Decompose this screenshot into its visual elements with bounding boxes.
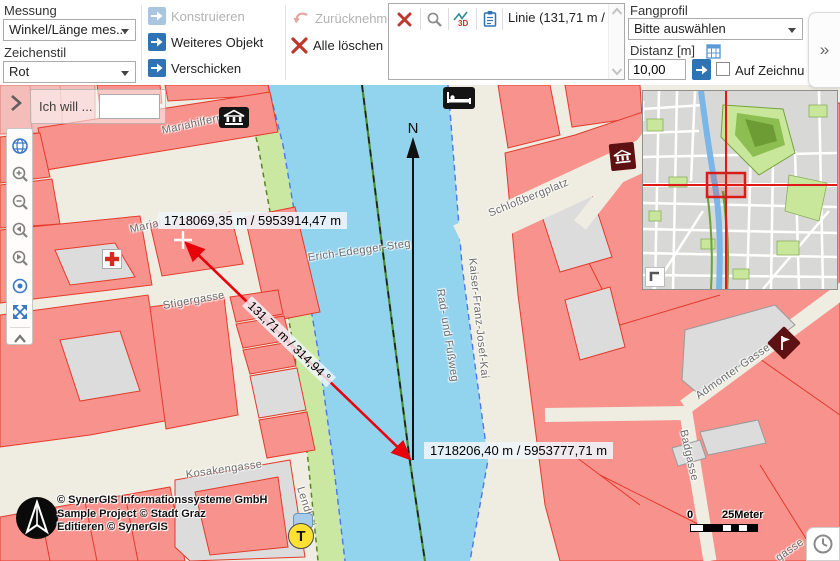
map-copyright: © SynerGIS Informationssysteme GmbH Samp… (57, 494, 267, 535)
delete-icon (291, 37, 308, 54)
toolbar-separator (285, 5, 286, 80)
overview-map-graphic (643, 91, 837, 289)
expand-panel-icon[interactable] (8, 93, 24, 113)
measurement-tool-select[interactable]: Winkel/Länge mes... (3, 19, 136, 41)
blue-arrow-icon (696, 64, 708, 76)
scalebar-start-label: 0 (687, 509, 693, 521)
measure-end-coords: 1718206,40 m / 5953777,71 m (424, 442, 613, 459)
panel-separator (420, 8, 421, 30)
snap-on-drawing-label: Auf Zeichnung fang (735, 63, 805, 78)
apply-distance-button[interactable] (692, 59, 711, 80)
profile-3d-button[interactable]: 3D (450, 7, 474, 31)
double-chevron-icon: » (820, 40, 829, 60)
scroll-up-icon[interactable] (611, 7, 623, 16)
hotel-bed-icon[interactable] (443, 87, 475, 109)
globe-icon[interactable] (10, 136, 30, 156)
toolbar: Messung Winkel/Länge mes... Zeichenstil … (0, 0, 840, 85)
delete-all-label: Alle löschen (313, 38, 383, 53)
magnifier-icon (426, 11, 443, 28)
zoom-in-icon[interactable] (10, 164, 30, 184)
full-extent-icon[interactable] (10, 302, 30, 322)
panel-separator (448, 8, 449, 30)
zoom-next-icon[interactable] (10, 248, 30, 268)
panel-separator (476, 8, 477, 30)
another-object-label: Weiteres Objekt (171, 35, 263, 50)
measurement-group-label: Messung (4, 3, 57, 18)
blue-arrow-icon (148, 7, 166, 25)
distance-label: Distanz [m] (630, 43, 695, 58)
copyright-line: Sample Project © Stadt Graz (57, 508, 267, 522)
delete-all-button[interactable]: Alle löschen (291, 37, 383, 54)
chevron-down-icon (121, 29, 129, 34)
locate-icon[interactable] (10, 276, 30, 296)
blue-arrow-icon (148, 59, 166, 77)
report-icon (482, 10, 498, 28)
snap-group-label: Fangprofil (630, 3, 688, 18)
overview-extent-box[interactable] (707, 173, 745, 197)
construct-label: Konstruieren (171, 9, 245, 24)
another-object-button[interactable]: Weiteres Objekt (148, 33, 263, 51)
landmark-pin-icon[interactable] (609, 142, 637, 171)
distance-input[interactable] (628, 59, 686, 80)
report-button[interactable] (478, 7, 502, 31)
north-compass-logo (15, 496, 59, 540)
style-group-label: Zeichenstil (4, 45, 66, 60)
scalebar (690, 524, 758, 532)
undo-icon (292, 9, 310, 27)
draw-style-select[interactable]: Rot (3, 61, 136, 83)
chevron-down-icon (121, 71, 129, 76)
send-label: Verschicken (171, 61, 241, 76)
delete-measurement-button[interactable] (392, 7, 416, 31)
search-input[interactable] (99, 94, 160, 119)
map-tools (6, 128, 33, 345)
pharmacy-cross-icon[interactable] (102, 249, 122, 269)
grid-icon[interactable] (706, 44, 721, 59)
tool-divider (10, 327, 30, 328)
snap-profile-select[interactable]: Bitte auswählen (628, 18, 803, 40)
undo-button[interactable]: Zurücknehmen (292, 9, 402, 27)
copyright-line: © SynerGIS Informationssysteme GmbH (57, 494, 267, 508)
flag-icon[interactable] (767, 326, 801, 360)
clock-icon (812, 533, 834, 555)
zoom-to-measurement-button[interactable] (422, 7, 446, 31)
snap-on-drawing-checkbox[interactable] (716, 62, 730, 76)
history-clock-button[interactable] (806, 527, 840, 561)
measure-start-coords: 1718069,35 m / 5953914,47 m (158, 212, 347, 229)
copyright-line: Editieren © SynerGIS (57, 521, 267, 535)
measurement-tool-value: Winkel/Länge mes... (9, 22, 127, 37)
search-label: Ich will ... (39, 99, 92, 114)
delete-icon (397, 12, 412, 27)
corner-arrow-icon (646, 268, 664, 286)
gis-application: Messung Winkel/Länge mes... Zeichenstil … (0, 0, 840, 561)
draw-style-value: Rot (9, 64, 29, 79)
svg-text:3D: 3D (458, 19, 468, 28)
scalebar-end-label: 25Meter (722, 509, 764, 521)
profile-3d-icon: 3D (453, 10, 472, 28)
map-viewport[interactable]: Mariahilferplatz Mariahilf Stigergasse K… (0, 85, 840, 561)
search-panel: Ich will ... (30, 89, 166, 124)
expand-toolbar-button[interactable]: » (808, 12, 840, 88)
zoom-out-icon[interactable] (10, 192, 30, 212)
taxi-icon[interactable]: T (288, 523, 314, 549)
museum-icon[interactable] (219, 107, 249, 128)
construct-button[interactable]: Konstruieren (148, 7, 245, 25)
snap-profile-value: Bitte auswählen (634, 21, 726, 36)
send-button[interactable]: Verschicken (148, 59, 241, 77)
measured-objects-panel: 3D Linie (131,71 m / ... (388, 3, 625, 80)
panel-scrollbar[interactable] (608, 4, 624, 79)
collapse-tools-icon[interactable] (10, 329, 30, 349)
chevron-down-icon (788, 28, 796, 33)
zoom-previous-icon[interactable] (10, 220, 30, 240)
collapse-overview-button[interactable] (645, 267, 665, 287)
measurement-list-item[interactable]: Linie (131,71 m / ... (508, 10, 606, 25)
overview-map[interactable] (642, 90, 838, 290)
scroll-down-icon[interactable] (611, 67, 623, 76)
toolbar-separator (141, 5, 142, 80)
panel-separator (502, 8, 503, 30)
blue-arrow-icon (148, 33, 166, 51)
